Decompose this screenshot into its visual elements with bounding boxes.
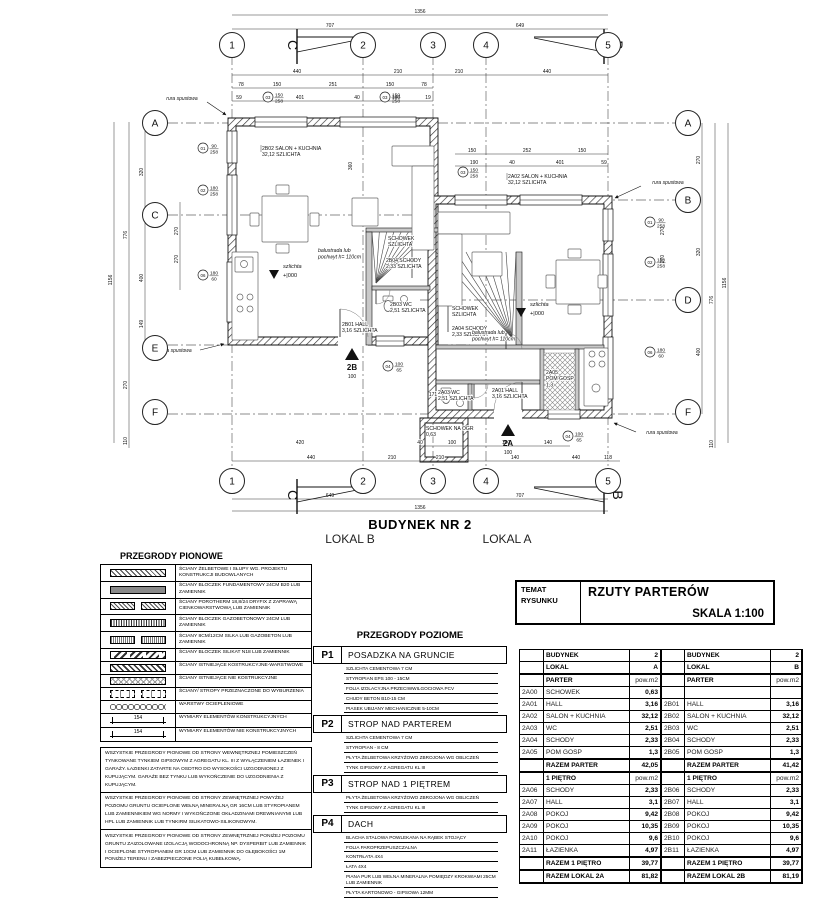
dim-text: 59 [601, 160, 607, 166]
svg-text:258: 258 [392, 99, 400, 105]
svg-text:2B01 HALL: 2B01 HALL [342, 322, 368, 328]
table-cell-code: 2A06 [520, 785, 544, 797]
dim-text: 400 [139, 274, 145, 283]
table-cell-code: 2A10 [520, 833, 544, 845]
table-cell-code: 2B04 [661, 735, 685, 747]
grid-bubble-3: 3 [421, 469, 446, 494]
dim-text: 110 [709, 440, 715, 448]
svg-text:SCHOWEK: SCHOWEK [452, 306, 479, 312]
dim-text: 150 [386, 82, 395, 88]
table-cell-value: pow.m2 [771, 674, 802, 687]
table-cell-value: 3,16 [771, 699, 802, 711]
dim-text: 150 [578, 148, 587, 154]
furniture [584, 348, 608, 406]
room-label: 2B04 SCHODY2,33 SZLICHTA [386, 258, 422, 270]
furniture [412, 166, 434, 250]
svg-text:+|000: +|000 [530, 311, 544, 317]
dim-text: 140 [544, 440, 553, 446]
dim-text: 440 [572, 455, 581, 461]
svg-text:258: 258 [210, 150, 218, 156]
svg-text:F: F [152, 408, 158, 419]
dimension-example: 154 [110, 730, 166, 739]
table-cell-value: pow.m2 [630, 772, 661, 785]
lokal-b-label: LOKAL B [305, 532, 395, 546]
svg-text:32,12 SZLICHTA: 32,12 SZLICHTA [262, 152, 301, 158]
svg-text:65: 65 [576, 438, 582, 444]
window-marker-01: 0190258 [645, 217, 666, 230]
pattern-swatch [110, 586, 166, 594]
legend-swatch [101, 599, 176, 615]
dim-text: 440 [543, 69, 552, 75]
dim-text: 1156 [108, 274, 114, 285]
window [376, 336, 404, 346]
grid-bubble-2: 2 [351, 469, 376, 494]
table-cell-name: RAZEM LOKAL 2A [544, 870, 630, 883]
dim-text: 440 [293, 69, 302, 75]
table-cell-code: 2A09 [520, 821, 544, 833]
table-cell-value: pow.m2 [771, 772, 802, 785]
dim-text: 440 [307, 455, 316, 461]
table-cell-value: 10,35 [771, 821, 802, 833]
table-cell-value: 32,12 [771, 711, 802, 723]
table-cell-name: POKOJ [544, 821, 630, 833]
dim-text: 270 [174, 227, 180, 236]
svg-text:100: 100 [504, 450, 513, 456]
table-cell-code: 2B03 [661, 723, 685, 735]
layer-code: P2 [314, 716, 342, 732]
drawing-scale: SKALA 1:100 [692, 608, 764, 620]
svg-text:2: 2 [360, 477, 366, 488]
furniture [598, 275, 607, 288]
dim-text: 210 [436, 455, 445, 461]
door-gap [494, 409, 522, 419]
dim-text: 150 [468, 148, 477, 154]
table-cell-name: POKOJ [544, 809, 630, 821]
legend-vertical-row: 154WYMIARY ELEMENTÓW NIE KONSTRUKCYJNYCH [101, 728, 311, 741]
svg-text:C: C [151, 211, 158, 222]
table-cell-code: 2A03 [520, 723, 544, 735]
table-cell-value: 3,1 [771, 797, 802, 809]
legend-swatch [101, 565, 176, 581]
furniture [250, 213, 259, 226]
layer-item: PIANA PUR LUB WEŁNA MINERALNA POMIĘDZY K… [344, 872, 498, 888]
pattern-swatch [110, 636, 135, 644]
window-marker-01: 0190258 [198, 143, 219, 156]
table-cell-value: 81,82 [630, 870, 661, 883]
dim-text: 1156 [722, 277, 728, 288]
pattern-swatch [110, 569, 166, 577]
dim-text: 251 [329, 82, 338, 88]
svg-text:60: 60 [658, 354, 664, 360]
entrance-marker-2B: 2B100 [345, 348, 359, 380]
grid-bubble-1: 1 [220, 469, 245, 494]
grid-bubble-4: 4 [474, 33, 499, 58]
grid-bubble-5: 5 [596, 33, 621, 58]
legend-vertical-row: ŚCIANY ŻELBETOWE I SŁUPY WG. PROJEKTU KO… [101, 565, 311, 582]
furniture [276, 185, 289, 194]
table-cell-code [520, 772, 544, 785]
table-cell-name: SALON + KUCHNIA [685, 711, 771, 723]
svg-text:258: 258 [470, 174, 478, 180]
table-cell-value: 9,42 [630, 809, 661, 821]
table-cell-code: 2B05 [661, 747, 685, 759]
table-cell-value: 1,3 [630, 747, 661, 759]
pattern-swatch [141, 636, 166, 644]
svg-text:3,16 SZLICHTA: 3,16 SZLICHTA [342, 328, 378, 334]
legend-vertical-row: ŚCIANY BLOCZEK FUNDAMENTOWY 24CM B20 LUB… [101, 582, 311, 599]
grid-bubble-5: 5 [596, 469, 621, 494]
table-cell-code [661, 857, 685, 870]
layer-code: P1 [314, 647, 342, 663]
layer-item: PŁYTA KARTONOWO - GIPSOWA 12MM [344, 888, 498, 898]
table-cell-name: ŁAZIENKA [544, 845, 630, 857]
svg-text:rura spustowa: rura spustowa [166, 96, 198, 102]
room-label: 2B02 SALON + KUCHNIA32,12 SZLICHTA [261, 145, 322, 158]
furniture [546, 275, 555, 288]
legend-vertical-rows: ŚCIANY ŻELBETOWE I SŁUPY WG. PROJEKTU KO… [100, 564, 312, 742]
layer-item: PIASEK UBIJANY MECHANICZNIE 5-10CM [344, 704, 498, 714]
svg-text:A: A [152, 119, 159, 130]
partition-wall [516, 252, 522, 345]
legend-horizontal-section: P3STROP NAD 1 PIĘTREMPŁYTA ŻELBETOWA KRZ… [313, 775, 507, 813]
layer-item: CHUDY BETON B10-15 CM [344, 694, 498, 704]
legend-swatch [101, 688, 176, 700]
table-cell-name: RAZEM PARTER [685, 759, 771, 772]
dim-text: 320 [139, 168, 145, 177]
table-cell-name: 1 PIĘTRO [544, 772, 630, 785]
svg-text:02: 02 [648, 260, 653, 265]
svg-text:3: 3 [430, 41, 436, 52]
drawing-title: RZUTY PARTERÓW [581, 582, 773, 602]
dimension-example-value: 154 [110, 729, 166, 735]
dim-text: 360 [348, 162, 354, 171]
svg-text:1,3: 1,3 [546, 382, 553, 388]
furniture [235, 257, 253, 272]
table-cell-value: 1,3 [771, 747, 802, 759]
furniture [310, 213, 319, 226]
pattern-swatch [141, 602, 166, 610]
svg-text:rura spustowa: rura spustowa [646, 430, 678, 436]
table-cell-name: RAZEM 1 PIĘTRO [544, 857, 630, 870]
layer-item: STYROPIAN EPS 100 - 15CM [344, 674, 498, 684]
downspout-annotation: rura spustowa [615, 180, 684, 198]
partition-wall [372, 286, 430, 290]
legend-swatch [101, 615, 176, 631]
entrance-marker-2A: 2A100 [501, 424, 515, 456]
legend-vertical-item-text: WYMIARY ELEMENTÓW NIE KONSTRUKCYJNYCH [176, 728, 311, 741]
table-cell-name: HALL [685, 699, 771, 711]
dim-text: 150 [273, 82, 282, 88]
svg-text:D: D [684, 296, 691, 307]
dim-text: 649 [516, 23, 525, 29]
legend-vertical-row: ŚCIANY/ STROPY PRZEZNACZONE DO WYBURZENI… [101, 688, 311, 701]
table-cell-code [661, 772, 685, 785]
table-cell-value: 2,33 [630, 735, 661, 747]
grid-bubble-3: 3 [421, 33, 446, 58]
table-cell-value: 9,42 [771, 809, 802, 821]
svg-text:0,63: 0,63 [426, 432, 436, 438]
svg-text:balustrada lub: balustrada lub [318, 248, 351, 254]
table-cell-name: SALON + KUCHNIA [544, 711, 630, 723]
window-marker-06: 0618060 [198, 270, 219, 283]
layer-item: PŁYTA ŻELBETOWA KRZYŻOWO ZBROJONA WG OBL… [344, 753, 498, 763]
legend-vertical-item-text: ŚCIANY BLOCZEK SILIKAT N18 LUB ZAMIENNIK [176, 649, 311, 661]
table-cell-code [661, 759, 685, 772]
dim-text: 40 [417, 440, 423, 446]
pattern-swatch [110, 677, 166, 685]
dim-text: 40 [354, 95, 360, 101]
legend-horizontal-section: P4DACHBLACHA STALOWA POWLEKANA NA RĄBEK … [313, 815, 507, 898]
svg-text:03: 03 [461, 170, 466, 175]
table-cell-name: WC [685, 723, 771, 735]
layer-item: FOLIA PAROPRZEPUSZCZALNA [344, 843, 498, 853]
window [340, 117, 416, 127]
table-cell-value: 9,6 [630, 833, 661, 845]
legend-note: WSZYSTKIE PRZEGRODY PIONOWE OD STRONY WE… [101, 748, 311, 793]
floor-plan-drawing: 1356707649440210210440781502511507859401… [0, 0, 825, 520]
legend-note: WSZYSTKIE PRZEGRODY PIONOWE OD STRONY ZE… [101, 793, 311, 830]
table-cell-name: LOKAL [544, 662, 630, 674]
table-cell-name: SCHODY [685, 785, 771, 797]
legend-swatch: 154 [101, 728, 176, 741]
pattern-swatch [141, 690, 166, 698]
table-cell-name: WC [544, 723, 630, 735]
legend-vertical-item-text: WYMIARY ELEMENTÓW KONSTRUKCYJNYCH [176, 714, 311, 727]
dim-text: 401 [296, 95, 305, 101]
layer-item: FOLIA IZOLACYJNA PRZECIWWILGOCIOWA PCV [344, 684, 498, 694]
table-cell-name: POKOJ [685, 833, 771, 845]
table-cell-name: ŁAZIENKA [685, 845, 771, 857]
title-block-main: RZUTY PARTERÓW SKALA 1:100 [581, 582, 773, 623]
table-cell-name: 1 PIĘTRO [685, 772, 771, 785]
svg-text:+|000: +|000 [283, 273, 297, 279]
svg-text:SZLICHTA: SZLICHTA [452, 312, 477, 318]
pattern-swatch [110, 703, 166, 711]
table-cell-code [520, 650, 544, 662]
table-cell-value: 2 [771, 650, 802, 662]
grid-bubble-B: B [676, 188, 701, 213]
table-cell-name: LOKAL [685, 662, 771, 674]
dim-text: 400 [696, 348, 702, 357]
svg-text:A: A [685, 119, 692, 130]
table-cell-value: 2,51 [630, 723, 661, 735]
table-cell-name: BUDYNEK [685, 650, 771, 662]
table-cell-code: 2B09 [661, 821, 685, 833]
dim-text: 707 [326, 23, 335, 29]
table-cell-code: 2B07 [661, 797, 685, 809]
legend-swatch: 154 [101, 714, 176, 727]
dim-text: 171 [429, 392, 438, 398]
svg-text:01: 01 [648, 220, 653, 225]
grid-bubble-A: A [143, 111, 168, 136]
table-cell-value: 3,16 [630, 699, 661, 711]
layer-item: PŁYTA ŻELBETOWA KRZYŻOWO ZBROJONA WG OBL… [344, 793, 498, 803]
partition-wall [540, 349, 544, 410]
legend-note: WSZYSTKIE PRZEGRODY PIONOWE OD STRONY ZE… [101, 830, 311, 866]
downspout-annotation: rura spustowa [614, 423, 678, 436]
grid-bubble-F: F [676, 400, 701, 425]
pattern-swatch [110, 664, 166, 672]
table-cell-name: SCHODY [544, 785, 630, 797]
table-cell-code: 2B11 [661, 845, 685, 857]
table-cell-value: 4,97 [771, 845, 802, 857]
grid-bubble-C: C [143, 203, 168, 228]
level-marker: szlichta+|000 [269, 264, 302, 279]
layer-name: STROP NAD 1 PIĘTREM [342, 776, 450, 792]
grid-bubble-4: 4 [474, 469, 499, 494]
svg-text:POM GOSP: POM GOSP [546, 376, 574, 382]
dim-text: 118 [604, 455, 612, 461]
table-cell-code: 2B01 [661, 699, 685, 711]
dim-text: 1356 [414, 9, 425, 15]
layer-code: P4 [314, 816, 342, 832]
legend-vertical-row: ŚCIANY BLOCZEK SILIKAT N18 LUB ZAMIENNIK [101, 649, 311, 662]
window [227, 131, 237, 163]
room-label: 2A02 SALON + KUCHNIA32,12 SZLICHTA [507, 173, 568, 186]
table-cell-value: 81,19 [771, 870, 802, 883]
pattern-swatch [110, 651, 166, 659]
table-cell-value: 4,97 [630, 845, 661, 857]
table-cell-code [661, 687, 685, 699]
dim-text: 78 [421, 82, 427, 88]
layer-name: POSADZKA NA GRUNCIE [342, 647, 455, 663]
svg-text:258: 258 [275, 99, 283, 105]
table-cell-code: 2A04 [520, 735, 544, 747]
svg-text:1: 1 [229, 477, 235, 488]
table-cell-code: 2A08 [520, 809, 544, 821]
furniture [276, 244, 289, 253]
table-cell-code: 2A00 [520, 687, 544, 699]
svg-text:2A03 WC: 2A03 WC [438, 390, 460, 396]
grid-bubble-1: 1 [220, 33, 245, 58]
table-cell-code: 2B08 [661, 809, 685, 821]
dim-text: 210 [394, 69, 403, 75]
layer-section-header: P3STROP NAD 1 PIĘTREM [313, 775, 507, 793]
pattern-swatch [110, 602, 135, 610]
furniture [568, 249, 581, 258]
table-cell-value: 3,1 [630, 797, 661, 809]
legend-swatch [101, 662, 176, 674]
layer-code: P3 [314, 776, 342, 792]
table-cell-code: 2A05 [520, 747, 544, 759]
table-cell-value: 10,35 [630, 821, 661, 833]
layer-item: TYNK GIPSOWY Z AGREGATU KL III [344, 803, 498, 813]
svg-text:06: 06 [648, 350, 653, 355]
partition-wall [575, 349, 579, 410]
layer-item: KONTRŁATA 4X4 [344, 852, 498, 862]
table-cell-value: pow.m2 [630, 674, 661, 687]
table-cell-name: RAZEM 1 PIĘTRO [685, 857, 771, 870]
svg-text:2B04 SCHODY: 2B04 SCHODY [386, 258, 422, 264]
dim-text: 190 [470, 160, 479, 166]
table-cell-code: 2A01 [520, 699, 544, 711]
svg-text:04: 04 [566, 434, 571, 439]
table-cell-code [520, 662, 544, 674]
dim-text: 270 [174, 255, 180, 264]
room-label: 2B03 WC2,51 SZLICHTA [390, 302, 426, 314]
svg-text:SCHOWEK: SCHOWEK [388, 236, 415, 242]
svg-text:rura spustowa: rura spustowa [652, 180, 684, 186]
svg-text:2B02 SALON + KUCHNIA: 2B02 SALON + KUCHNIA [262, 146, 322, 152]
svg-text:F: F [685, 408, 691, 419]
table-cell-name: HALL [685, 797, 771, 809]
svg-text:02: 02 [201, 188, 206, 193]
layer-name: STROP NAD PARTEREM [342, 716, 452, 732]
dim-text: 210 [388, 455, 397, 461]
legend-vertical-row: ŚCIANY 8CM/12CM SILKA LUB GAZOBETON LUB … [101, 632, 311, 649]
table-cell-value: 32,12 [630, 711, 661, 723]
svg-text:4: 4 [483, 41, 489, 52]
furniture [556, 260, 600, 304]
lokal-a-label: LOKAL A [462, 532, 552, 546]
partition-wall [436, 380, 540, 384]
door-gap [338, 336, 368, 346]
window-marker-03: 03150258 [263, 92, 284, 105]
furniture [568, 305, 581, 314]
table-cell-code [520, 674, 544, 687]
legend-vertical-item-text: ŚCIANY 8CM/12CM SILKA LUB GAZOBETON LUB … [176, 632, 311, 648]
svg-text:2,51 SZLICHTA: 2,51 SZLICHTA [390, 308, 426, 314]
legend-swatch [101, 649, 176, 661]
svg-text:5: 5 [605, 41, 611, 52]
downspout-annotation: rura spustowa [166, 96, 226, 115]
svg-text:01: 01 [201, 146, 206, 151]
table-cell-value: 39,77 [630, 857, 661, 870]
layer-section-header: P2STROP NAD PARTEREM [313, 715, 507, 733]
legend-vertical-notes: WSZYSTKIE PRZEGRODY PIONOWE OD STRONY WE… [100, 747, 312, 868]
layer-item: SZLICHTA CEMENTOWA 7 CM [344, 733, 498, 743]
svg-text:06: 06 [201, 273, 206, 278]
room-label: 2A01 HALL3,16 SZLICHTA [492, 388, 528, 400]
legend-vertical-row: 154WYMIARY ELEMENTÓW KONSTRUKCYJNYCH [101, 714, 311, 728]
svg-text:2B: 2B [347, 363, 357, 372]
svg-text:3,16 SZLICHTA: 3,16 SZLICHTA [492, 394, 528, 400]
layer-name: DACH [342, 816, 373, 832]
table-cell-name: RAZEM PARTER [544, 759, 630, 772]
table-cell-value: 9,6 [771, 833, 802, 845]
layer-item: BLACHA STALOWA POWLEKANA NA RĄBEK STOJĄC… [344, 833, 498, 843]
legend-vertical-row: ŚCIANY POROTHERM 18,8/24 DRYFIX Z ZAPRAW… [101, 599, 311, 616]
dim-text: 270 [123, 381, 129, 390]
svg-text:balustrada lub: balustrada lub [472, 330, 505, 336]
dim-text: 19 [425, 95, 431, 101]
table-cell-value: 2,33 [771, 785, 802, 797]
table-cell-code [520, 759, 544, 772]
svg-text:SZLICHTA: SZLICHTA [388, 242, 413, 248]
window-marker-04: 0410065 [563, 431, 584, 444]
legend-swatch [101, 675, 176, 687]
furniture [352, 198, 378, 226]
legend-vertical-partitions: PRZEGRODY PIONOWE ŚCIANY ŻELBETOWE I SŁU… [100, 551, 312, 868]
window-marker-03: 03150258 [380, 92, 401, 105]
dim-text: 420 [296, 440, 305, 446]
furniture [438, 212, 510, 234]
grid-bubble-D: D [676, 288, 701, 313]
downspout-annotation: rura spustowa [160, 344, 224, 354]
svg-text:B: B [685, 196, 692, 207]
table-cell-value: B [771, 662, 802, 674]
legend-vertical-item-text: ŚCIANY BLOCZEK GAZOBETONOWY 24CM LUB ZAM… [176, 615, 311, 631]
building-title: BUDYNEK NR 2 [320, 517, 520, 532]
dim-text: 59 [236, 95, 242, 101]
table-cell-code [661, 662, 685, 674]
legend-vertical-row: ŚCIANY ISTNIEJĄCE KOSTRUKCYJNE-WARSTWOWE [101, 662, 311, 675]
table-cell-name: POM GOSP [685, 747, 771, 759]
legend-vertical-item-text: ŚCIANY BLOCZEK FUNDAMENTOWY 24CM B20 LUB… [176, 582, 311, 598]
layer-section-header: P1POSADZKA NA GRUNCIE [313, 646, 507, 664]
table-cell-code: 2A11 [520, 845, 544, 857]
svg-text:C: C [285, 40, 301, 50]
